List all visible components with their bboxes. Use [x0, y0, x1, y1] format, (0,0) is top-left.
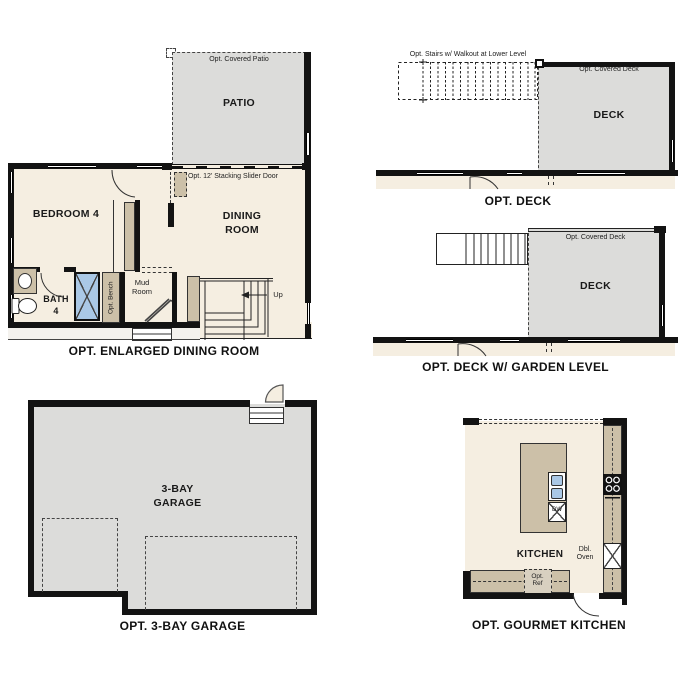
deck-corner-post [535, 59, 544, 68]
walkout-stairs-dashed [398, 62, 538, 100]
closet-shelf [124, 202, 135, 271]
house-window-1 [406, 339, 453, 342]
deck-covered-note: Opt. Covered Deck [544, 66, 674, 75]
deck-label: DECK [533, 280, 658, 294]
entry-steps [249, 407, 284, 424]
deck-right-window [671, 140, 674, 162]
plan-3-bay-garage: 3-BAY GARAGE OPT. 3-BAY GARAGE [25, 380, 323, 636]
stairs-up [200, 277, 280, 340]
plan-deck-garden-level: Opt. Covered Deck DECK OPT. DECK W/ GARD… [368, 225, 683, 377]
kitchen-door-arc [572, 593, 602, 618]
right-wall [622, 418, 627, 605]
bench-label: Opt. Bench [103, 273, 119, 322]
interior-strip [376, 176, 675, 189]
plan-opt-deck: Opt. Stairs w/ Walkout at Lower Level Op… [368, 45, 683, 215]
closet-left-line [113, 200, 114, 272]
deck-covered-note: Opt. Covered Deck [533, 234, 658, 243]
plan-enlarged-dining-room: Opt. Covered Patio PATIO Opt. 12' Stacki… [8, 45, 320, 365]
garage-left-wall [28, 400, 34, 597]
right-wall-stub [305, 324, 311, 339]
plan-gourmet-kitchen: Dbl. Oven DW KITCHEN Opt. Ref OPT. GOURM… [460, 415, 640, 635]
bottom-counter [470, 570, 570, 593]
double-oven [603, 543, 622, 569]
garage-top-wall-right [285, 400, 314, 407]
plan-caption-deck-garden: OPT. DECK W/ GARDEN LEVEL [368, 360, 663, 374]
bottom-left-stub [463, 571, 470, 599]
plan-caption-deck: OPT. DECK [368, 194, 668, 208]
coat-closet [187, 276, 200, 322]
bottom-wall-left [463, 593, 574, 599]
cooktop-burners [603, 474, 622, 499]
kitchen-label: KITCHEN [475, 548, 605, 561]
entry-door-swing [247, 381, 287, 403]
house-window-3 [577, 172, 625, 175]
interior-door-mark [468, 176, 502, 191]
toilet-fixture [11, 295, 38, 317]
left-wall-window-2 [10, 238, 13, 263]
top-dashed-opening [479, 419, 603, 424]
mud-dashed-opening [142, 267, 172, 273]
garage-bay-left [42, 518, 118, 592]
bath-sink-counter [13, 268, 37, 294]
interior-strip [373, 343, 675, 356]
bath-label: BATH 4 [36, 294, 76, 317]
island-sink [548, 472, 566, 501]
opt-ref-label: Opt. Ref [525, 573, 550, 588]
deck-top-rail [528, 228, 662, 232]
plan-caption-enlarged-dining: OPT. ENLARGED DINING ROOM [8, 344, 320, 358]
top-left-stub [463, 418, 479, 425]
counter-centerline [473, 581, 567, 582]
right-wall-window [307, 303, 310, 324]
plan-caption-kitchen: OPT. GOURMET KITCHEN [460, 618, 638, 632]
mud-door [142, 294, 176, 323]
floor-plan-options-sheet: Opt. Covered Patio PATIO Opt. 12' Stacki… [0, 0, 687, 687]
closet-wall [135, 200, 140, 272]
deck-stairs-note: Opt. Stairs w/ Walkout at Lower Level [388, 51, 548, 60]
house-window-2 [500, 339, 519, 342]
garden-stairs [436, 233, 528, 265]
deck-door-tick [546, 343, 552, 352]
right-wall [305, 165, 311, 303]
deck-right-window [661, 305, 664, 326]
bedroom-door-arc [111, 169, 137, 198]
left-wall-window-1 [10, 172, 13, 193]
hall-wall-lower [172, 272, 177, 323]
house-window-2 [507, 172, 522, 175]
dishwasher-label: DW [548, 507, 566, 514]
dining-label: DINING ROOM [190, 210, 294, 237]
stacking-slider-door [172, 164, 302, 169]
sink-basin-oval [18, 273, 32, 289]
interior-door-mark [456, 343, 490, 358]
deck-door-tick [548, 176, 554, 185]
house-window-1 [417, 172, 463, 175]
house-window-3 [568, 339, 620, 342]
plan-caption-garage: OPT. 3-BAY GARAGE [35, 619, 330, 633]
patio-window [306, 133, 310, 155]
sink-basin-1 [551, 475, 563, 486]
sink-basin-2 [551, 488, 563, 499]
garage-top-wall-left [28, 400, 250, 407]
front-steps [132, 328, 172, 341]
bottom-wall-right [599, 593, 627, 599]
slider-end-left [162, 163, 172, 170]
garage-right-wall [311, 400, 317, 615]
garage-label: 3-BAY GARAGE [75, 483, 280, 510]
dining-hall-dashed-wall [170, 172, 172, 203]
deck-label: DECK [544, 109, 674, 123]
opt-bench: Opt. Bench [102, 272, 120, 323]
bedroom-label: BEDROOM 4 [16, 208, 116, 222]
top-wall-window-1 [48, 165, 96, 168]
opt-ref-box: Opt. Ref [524, 569, 552, 594]
garage-bay-right [145, 536, 297, 610]
shower [74, 272, 100, 321]
hall-wall-upper [168, 203, 174, 227]
patio-label: PATIO [172, 97, 306, 111]
up-label: Up [268, 290, 288, 299]
patio-note: Opt. Covered Patio [172, 56, 306, 65]
hall-pocket [174, 172, 187, 197]
